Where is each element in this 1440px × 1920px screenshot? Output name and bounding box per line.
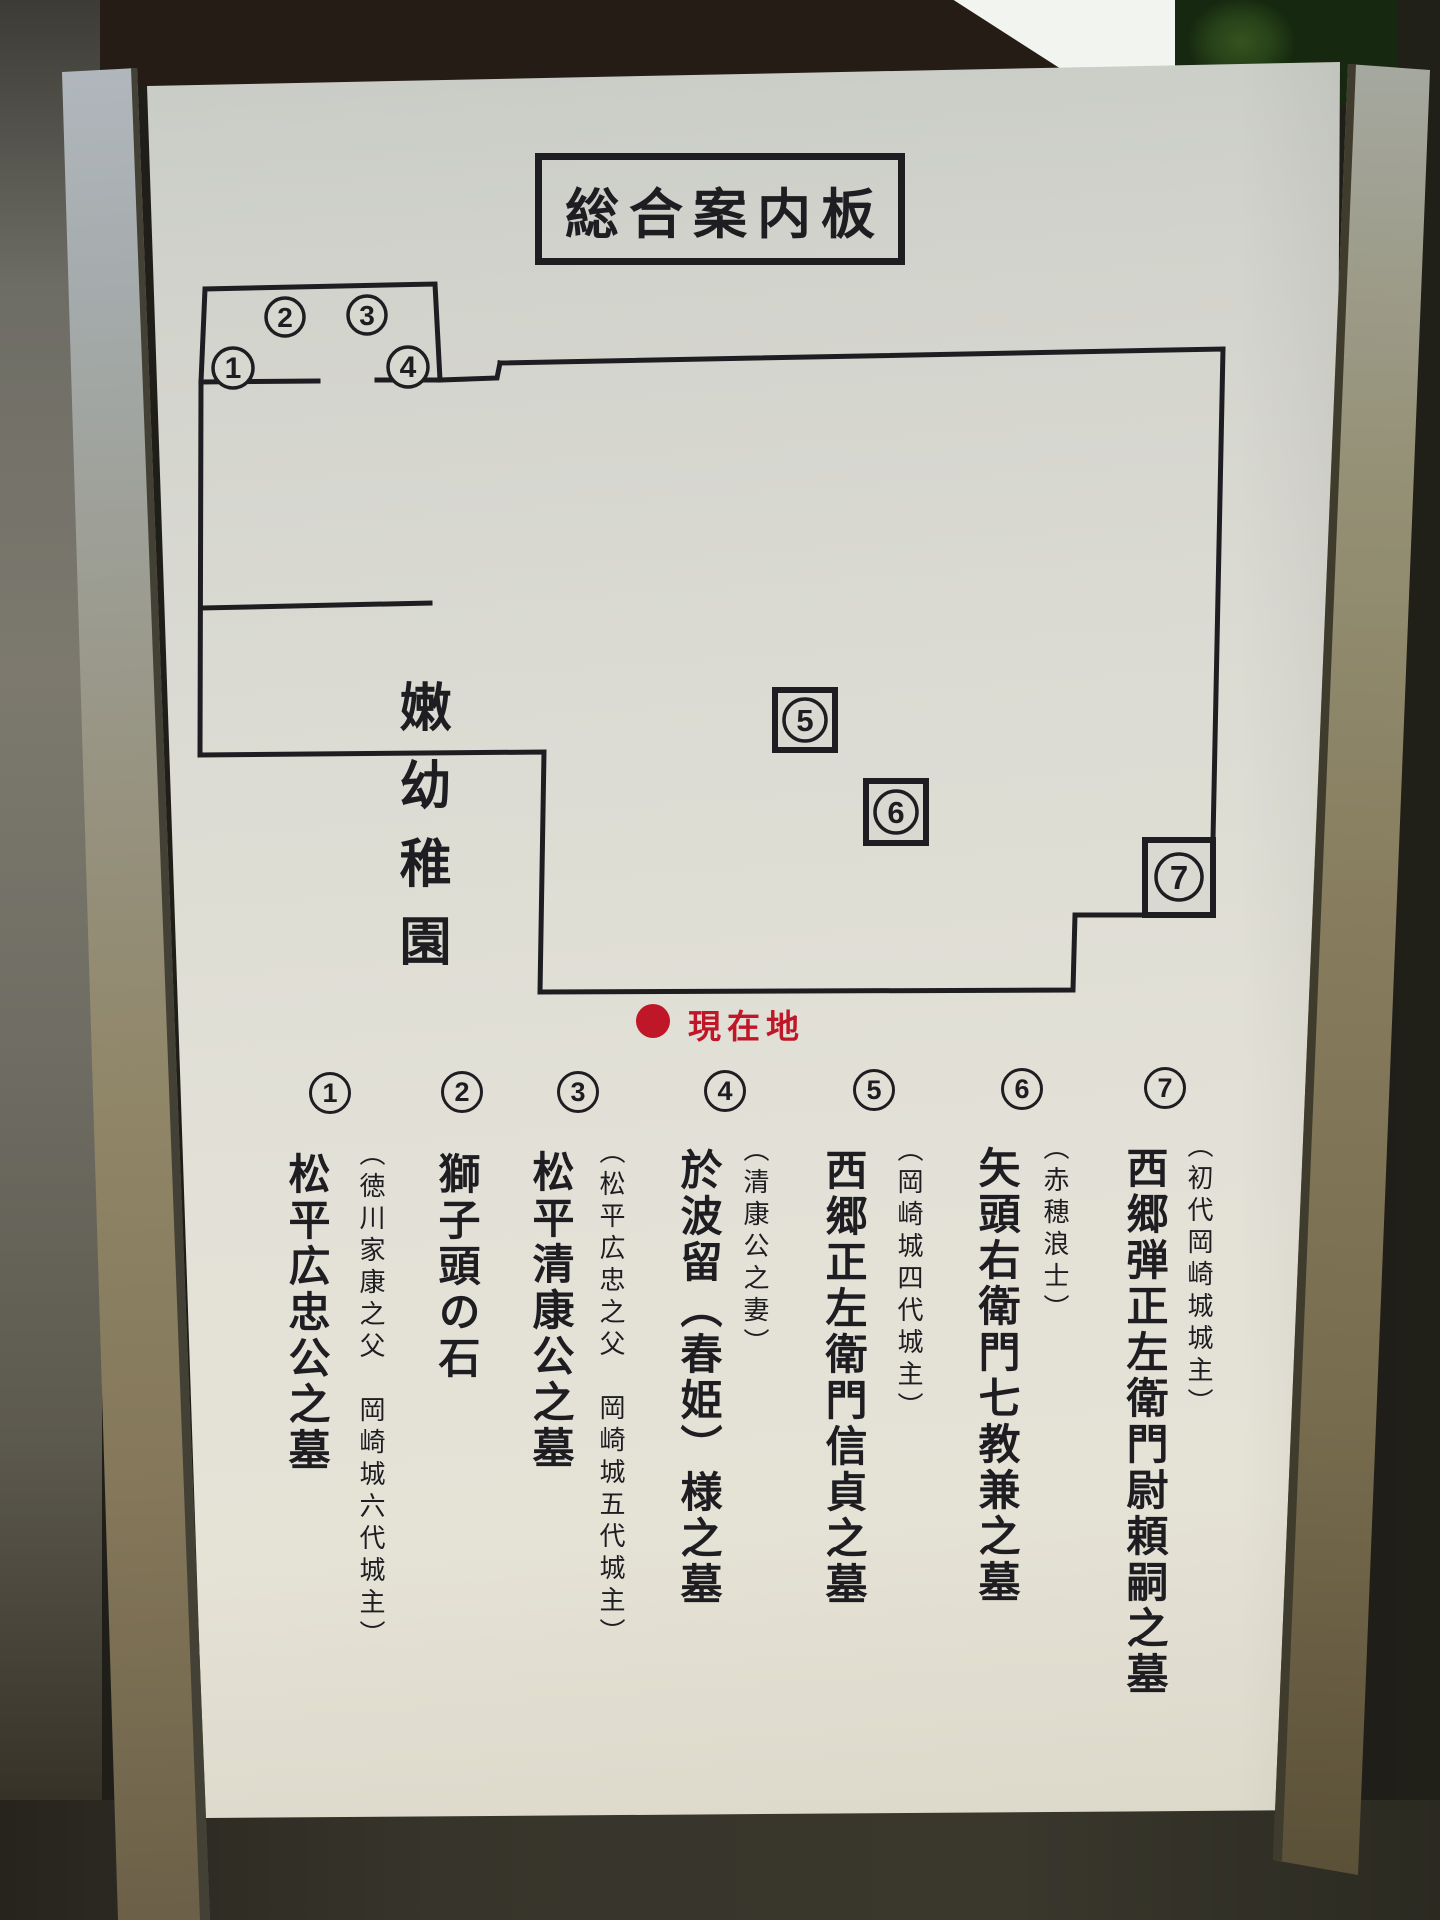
map-marker-7: 7 bbox=[1170, 859, 1188, 896]
legend-number-2: 2 bbox=[441, 1071, 483, 1113]
map-marker-2: 2 bbox=[277, 302, 293, 333]
legend-item-7-note: （初代岡崎城城主） bbox=[1185, 1132, 1211, 1420]
map-marker-4: 4 bbox=[400, 351, 417, 384]
map-marker-1: 1 bbox=[225, 352, 242, 385]
legend-item-7-name: 西郷弾正左衛門尉頼嗣之墓 bbox=[1122, 1146, 1164, 1698]
map-marker-5: 5 bbox=[796, 703, 813, 738]
map-marker-3: 3 bbox=[359, 300, 375, 331]
site-map: 1 2 3 4 5 6 7 bbox=[0, 0, 1440, 1920]
legend-item-5-name: 西郷正左衛門信貞之墓 bbox=[821, 1148, 863, 1608]
legend-item-4-note: （清康公之妻） bbox=[741, 1136, 767, 1360]
legend-number-4-text: 4 bbox=[717, 1076, 732, 1107]
legend-number-1: 1 bbox=[309, 1072, 351, 1114]
legend-number-5-text: 5 bbox=[866, 1075, 881, 1106]
legend-number-6-text: 6 bbox=[1014, 1074, 1029, 1105]
map-outline-main bbox=[200, 349, 1223, 992]
legend-number-4: 4 bbox=[704, 1070, 746, 1112]
legend-item-4-name: 於波留（春姫）様之墓 bbox=[676, 1148, 718, 1608]
map-internal-line bbox=[203, 603, 430, 608]
board-title: 総合案内板 bbox=[535, 153, 905, 265]
legend-item-1-name: 松平広忠公之墓 bbox=[284, 1152, 326, 1474]
legend-item-1-note: （徳川家康之父 岡崎城六代城主） bbox=[357, 1140, 383, 1652]
legend-item-3-note: （松平広忠之父 岡崎城五代城主） bbox=[597, 1138, 623, 1650]
legend-number-5: 5 bbox=[853, 1069, 895, 1111]
legend-item-3-name: 松平清康公之墓 bbox=[528, 1150, 570, 1472]
legend-number-7: 7 bbox=[1144, 1067, 1186, 1109]
photo-of-guide-board: 1 2 3 4 5 6 7 総合案内板 嫩幼稚園 現在地 1 2 3 4 5 6… bbox=[0, 0, 1440, 1920]
current-location-dot bbox=[636, 1004, 670, 1038]
legend-number-6: 6 bbox=[1001, 1068, 1043, 1110]
map-marker-6: 6 bbox=[887, 795, 904, 830]
legend-number-2-text: 2 bbox=[454, 1077, 469, 1108]
legend-number-7-text: 7 bbox=[1157, 1073, 1172, 1104]
map-area-label-kindergarten: 嫩幼稚園 bbox=[393, 680, 445, 992]
legend-item-6-name: 矢頭右衛門七教兼之墓 bbox=[974, 1146, 1016, 1606]
current-location-label: 現在地 bbox=[688, 1000, 805, 1048]
legend-item-6-note: （赤穂浪士） bbox=[1041, 1134, 1067, 1326]
legend-number-3-text: 3 bbox=[570, 1077, 585, 1108]
legend-item-2-name: 獅子頭の石 bbox=[434, 1152, 476, 1382]
legend-item-5-note: （岡崎城四代城主） bbox=[895, 1136, 921, 1424]
legend-number-1-text: 1 bbox=[322, 1078, 337, 1109]
legend-number-3: 3 bbox=[557, 1071, 599, 1113]
